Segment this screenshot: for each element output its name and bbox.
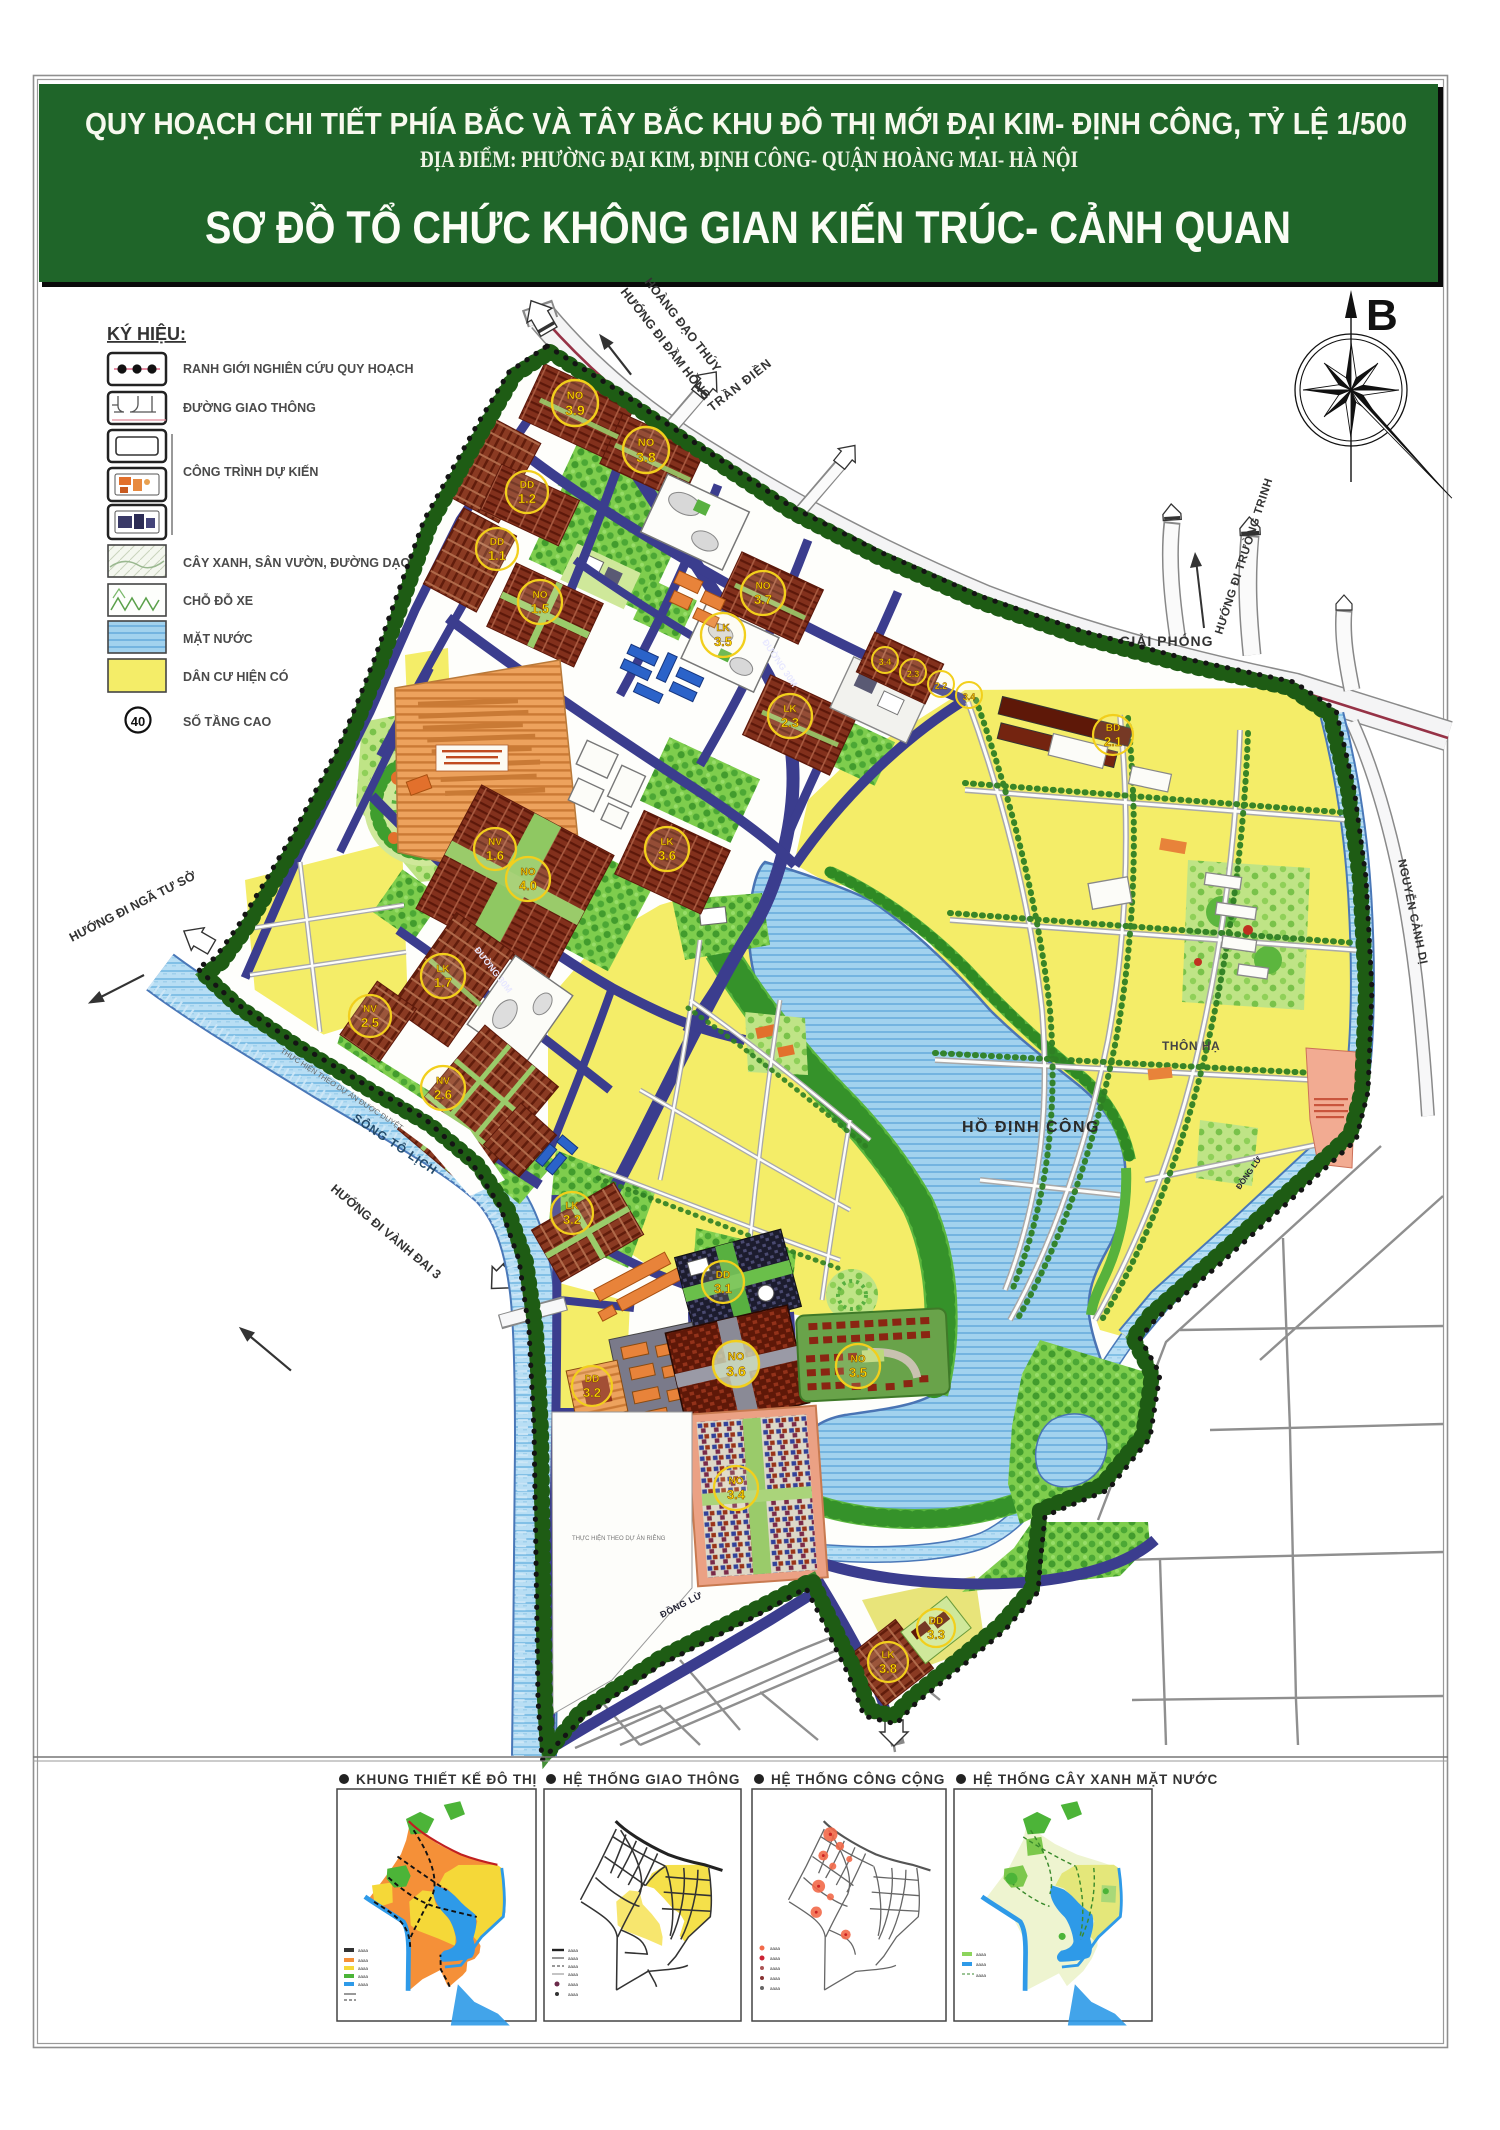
svg-text:ĐƯỜNG GIAO THÔNG: ĐƯỜNG GIAO THÔNG bbox=[183, 400, 316, 415]
svg-text:3.5: 3.5 bbox=[849, 1365, 867, 1380]
svg-text:aaaa: aaaa bbox=[770, 1986, 781, 1991]
svg-text:aaaa: aaaa bbox=[976, 1952, 987, 1957]
svg-text:3.5: 3.5 bbox=[714, 634, 732, 649]
svg-text:2.6: 2.6 bbox=[434, 1087, 452, 1102]
svg-text:40: 40 bbox=[131, 714, 145, 729]
svg-text:aaaa: aaaa bbox=[568, 1956, 579, 1961]
svg-text:aaaa: aaaa bbox=[976, 1962, 987, 1967]
svg-text:4.0: 4.0 bbox=[519, 878, 537, 893]
svg-text:2.1: 2.1 bbox=[1104, 734, 1122, 749]
svg-text:KÝ HIỆU:: KÝ HIỆU: bbox=[107, 323, 186, 344]
svg-text:2.5: 2.5 bbox=[361, 1015, 379, 1030]
svg-text:1.1: 1.1 bbox=[488, 548, 506, 563]
svg-text:aaaa: aaaa bbox=[770, 1956, 781, 1961]
svg-text:3.4: 3.4 bbox=[879, 657, 892, 667]
svg-text:3.8: 3.8 bbox=[879, 1661, 897, 1676]
svg-text:aaaa: aaaa bbox=[770, 1976, 781, 1981]
svg-text:BD: BD bbox=[1106, 723, 1120, 734]
svg-text:3.2: 3.2 bbox=[563, 1212, 581, 1227]
svg-text:aaaa: aaaa bbox=[568, 1982, 579, 1987]
svg-text:SƠ ĐỒ TỔ CHỨC KHÔNG GIAN KIẾN: SƠ ĐỒ TỔ CHỨC KHÔNG GIAN KIẾN TRÚC- CẢNH… bbox=[205, 202, 1291, 253]
svg-text:3.6: 3.6 bbox=[726, 1363, 746, 1379]
svg-text:HỒ ĐỊNH CÔNG: HỒ ĐỊNH CÔNG bbox=[962, 1117, 1100, 1136]
svg-text:2.2: 2.2 bbox=[935, 681, 948, 691]
svg-text:3.8: 3.8 bbox=[636, 449, 656, 465]
svg-text:NO: NO bbox=[533, 590, 548, 601]
svg-text:aaaa: aaaa bbox=[358, 1948, 369, 1953]
svg-text:NO: NO bbox=[638, 437, 655, 449]
svg-text:2.3: 2.3 bbox=[781, 715, 799, 730]
svg-text:3.4: 3.4 bbox=[963, 692, 976, 702]
svg-text:1.2: 1.2 bbox=[518, 491, 536, 506]
svg-text:aaaa: aaaa bbox=[568, 1948, 579, 1953]
svg-text:DD: DD bbox=[716, 1270, 730, 1281]
svg-text:aaaa: aaaa bbox=[358, 1958, 369, 1963]
svg-text:NV: NV bbox=[436, 1076, 450, 1087]
svg-text:3.3: 3.3 bbox=[927, 1627, 945, 1642]
svg-text:LK: LK bbox=[565, 1201, 579, 1212]
svg-text:HỆ THỐNG GIAO THÔNG: HỆ THỐNG GIAO THÔNG bbox=[563, 1772, 740, 1787]
svg-text:NO: NO bbox=[729, 1476, 744, 1487]
svg-text:1.6: 1.6 bbox=[486, 848, 504, 863]
svg-text:LK: LK bbox=[716, 623, 730, 634]
svg-text:NV: NV bbox=[488, 837, 502, 848]
svg-text:LK: LK bbox=[783, 704, 797, 715]
svg-text:THÔN HẠ: THÔN HẠ bbox=[1162, 1038, 1220, 1053]
svg-text:1.7: 1.7 bbox=[434, 975, 452, 990]
svg-text:1.5: 1.5 bbox=[531, 601, 549, 616]
svg-text:HỆ THỐNG CÔNG CỘNG: HỆ THỐNG CÔNG CỘNG bbox=[771, 1772, 945, 1787]
svg-text:3.1: 3.1 bbox=[714, 1281, 732, 1296]
svg-text:NO: NO bbox=[728, 1351, 745, 1363]
svg-text:aaaa: aaaa bbox=[770, 1966, 781, 1971]
svg-text:LK: LK bbox=[436, 964, 450, 975]
svg-text:DD: DD bbox=[585, 1374, 599, 1385]
svg-text:NO: NO bbox=[851, 1354, 866, 1365]
svg-text:aaaa: aaaa bbox=[568, 1992, 579, 1997]
svg-text:3.4: 3.4 bbox=[727, 1487, 746, 1502]
svg-text:DD: DD bbox=[520, 480, 534, 491]
svg-text:NV: NV bbox=[363, 1004, 377, 1015]
svg-text:aaaa: aaaa bbox=[358, 1974, 369, 1979]
svg-text:SỐ TẦNG CAO: SỐ TẦNG CAO bbox=[183, 714, 271, 729]
svg-text:CÔNG TRÌNH DỰ KIẾN: CÔNG TRÌNH DỰ KIẾN bbox=[183, 464, 318, 479]
svg-text:DD: DD bbox=[929, 1616, 943, 1627]
svg-text:3.7: 3.7 bbox=[754, 592, 772, 607]
svg-text:B: B bbox=[1366, 291, 1398, 340]
svg-text:LK: LK bbox=[660, 837, 674, 848]
svg-text:QUY HOẠCH CHI TIẾT PHÍA BẮC VÀ: QUY HOẠCH CHI TIẾT PHÍA BẮC VÀ TÂY BẮC K… bbox=[85, 105, 1407, 141]
svg-text:aaaa: aaaa bbox=[568, 1964, 579, 1969]
svg-text:NO: NO bbox=[567, 390, 584, 402]
svg-text:2.3: 2.3 bbox=[907, 669, 920, 679]
svg-text:ĐỊA ĐIỂM: PHƯỜNG ĐẠI KIM, ĐỊNH: ĐỊA ĐIỂM: PHƯỜNG ĐẠI KIM, ĐỊNH CÔNG- QUẬ… bbox=[420, 146, 1078, 172]
svg-text:KHUNG THIẾT KẾ ĐÔ THỊ: KHUNG THIẾT KẾ ĐÔ THỊ bbox=[356, 1772, 537, 1787]
svg-text:aaaa: aaaa bbox=[770, 1946, 781, 1951]
svg-text:HỆ THỐNG CÂY XANH MẶT NƯỚC: HỆ THỐNG CÂY XANH MẶT NƯỚC bbox=[973, 1772, 1218, 1787]
svg-text:RANH GIỚI NGHIÊN CỨU QUY HOẠCH: RANH GIỚI NGHIÊN CỨU QUY HOẠCH bbox=[183, 361, 414, 376]
svg-text:3.6: 3.6 bbox=[658, 848, 676, 863]
svg-text:aaaa: aaaa bbox=[358, 1966, 369, 1971]
svg-text:DD: DD bbox=[490, 537, 504, 548]
svg-text:CHỖ ĐỖ XE: CHỖ ĐỖ XE bbox=[183, 593, 253, 608]
svg-text:DÂN CƯ HIỆN CÓ: DÂN CƯ HIỆN CÓ bbox=[183, 669, 289, 684]
svg-text:3.9: 3.9 bbox=[565, 402, 585, 418]
svg-text:LK: LK bbox=[881, 1650, 895, 1661]
svg-text:THỰC HIỆN THEO DỰ ÁN RIÊNG: THỰC HIỆN THEO DỰ ÁN RIÊNG bbox=[572, 1534, 666, 1542]
svg-text:MẶT NƯỚC: MẶT NƯỚC bbox=[183, 631, 253, 646]
svg-text:NO: NO bbox=[756, 581, 771, 592]
svg-text:NO: NO bbox=[521, 867, 536, 878]
svg-text:aaaa: aaaa bbox=[568, 1972, 579, 1977]
svg-text:CÂY XANH, SÂN VƯỜN, ĐƯỜNG DẠO: CÂY XANH, SÂN VƯỜN, ĐƯỜNG DẠO bbox=[183, 555, 411, 570]
svg-text:aaaa: aaaa bbox=[358, 1982, 369, 1987]
svg-text:aaaa: aaaa bbox=[976, 1973, 987, 1978]
svg-text:3.2: 3.2 bbox=[583, 1385, 601, 1400]
